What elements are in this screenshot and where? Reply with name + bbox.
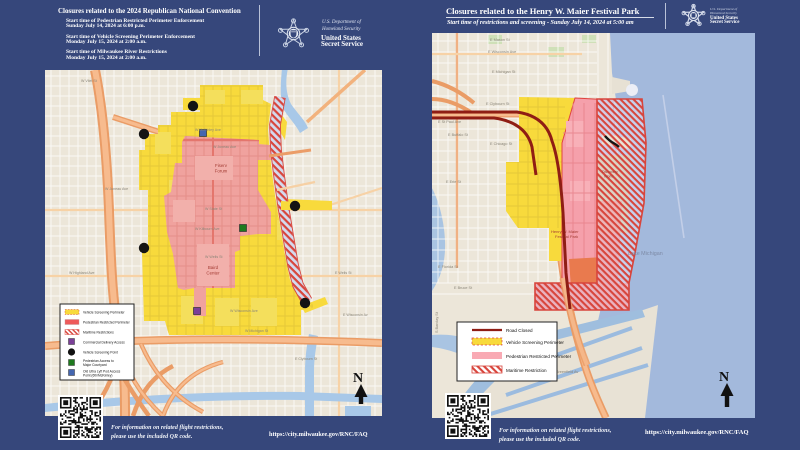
svg-text:E Wisconsin Av: E Wisconsin Av: [343, 313, 368, 317]
svg-text:Fiserv: Fiserv: [215, 163, 228, 168]
svg-text:E Clybourn St: E Clybourn St: [295, 357, 317, 361]
svg-text:E Buffalo St: E Buffalo St: [448, 133, 469, 137]
svg-text:N: N: [353, 371, 363, 386]
svg-text:Commercial Delivery Access: Commercial Delivery Access: [83, 341, 125, 345]
svg-text:W Vliet St: W Vliet St: [81, 79, 97, 83]
svg-text:Pedestrian Restricted Perimete: Pedestrian Restricted Perimeter: [506, 354, 572, 359]
svg-text:E Bruce St: E Bruce St: [454, 286, 473, 290]
svg-text:W State St: W State St: [205, 207, 222, 211]
svg-text:W Michigan St: W Michigan St: [245, 329, 268, 333]
svg-text:W Kilbourn Ave: W Kilbourn Ave: [195, 227, 220, 231]
svg-text:Maritime Restrictions: Maritime Restrictions: [83, 331, 114, 335]
svg-text:Major Courtyard: Major Courtyard: [83, 363, 107, 367]
svg-text:E St Paul Ave: E St Paul Ave: [438, 120, 461, 124]
svg-text:W Wisconsin Ave: W Wisconsin Ave: [230, 309, 258, 313]
svg-text:E Mason St: E Mason St: [490, 38, 511, 42]
svg-text:Vehicle Screening Point: Vehicle Screening Point: [83, 351, 118, 355]
svg-text:Vehicle Screening Perimeter: Vehicle Screening Perimeter: [83, 311, 126, 315]
svg-text:Forum: Forum: [215, 169, 228, 174]
svg-text:E Michigan St: E Michigan St: [492, 70, 516, 74]
svg-text:E Clybourn St: E Clybourn St: [486, 102, 510, 106]
svg-text:Vehicle Screening Perimeter: Vehicle Screening Perimeter: [506, 340, 564, 345]
svg-text:W Juneau Ave: W Juneau Ave: [213, 145, 236, 149]
svg-text:E Chicago St: E Chicago St: [490, 142, 513, 146]
svg-text:S Barclay St: S Barclay St: [435, 311, 439, 333]
svg-text:E Florida St: E Florida St: [438, 265, 459, 269]
svg-text:W Juneau Ave: W Juneau Ave: [105, 187, 128, 191]
svg-text:W McKinley Ave: W McKinley Ave: [195, 128, 221, 132]
svg-text:Pedestrian Restricted Perimete: Pedestrian Restricted Perimeter: [83, 321, 131, 325]
svg-text:Discovery: Discovery: [602, 170, 618, 174]
svg-text:Maritime Restriction: Maritime Restriction: [506, 368, 547, 373]
svg-text:Baird: Baird: [208, 265, 219, 270]
svg-text:E Wisconsin Ave: E Wisconsin Ave: [488, 50, 516, 54]
svg-text:W Highland Ave: W Highland Ave: [69, 271, 95, 275]
svg-text:N: N: [719, 370, 729, 385]
svg-text:World: World: [604, 175, 613, 179]
svg-text:Road Closed: Road Closed: [506, 328, 533, 333]
svg-text:W Wells St: W Wells St: [205, 255, 223, 259]
svg-text:Point (6th/McKinley): Point (6th/McKinley): [83, 373, 113, 377]
svg-text:Center: Center: [206, 271, 220, 276]
svg-text:Lake Michigan: Lake Michigan: [628, 251, 663, 257]
svg-text:E Erie St: E Erie St: [446, 180, 462, 184]
svg-text:E Wells St: E Wells St: [335, 271, 352, 275]
svg-text:Festival Park: Festival Park: [555, 234, 578, 239]
